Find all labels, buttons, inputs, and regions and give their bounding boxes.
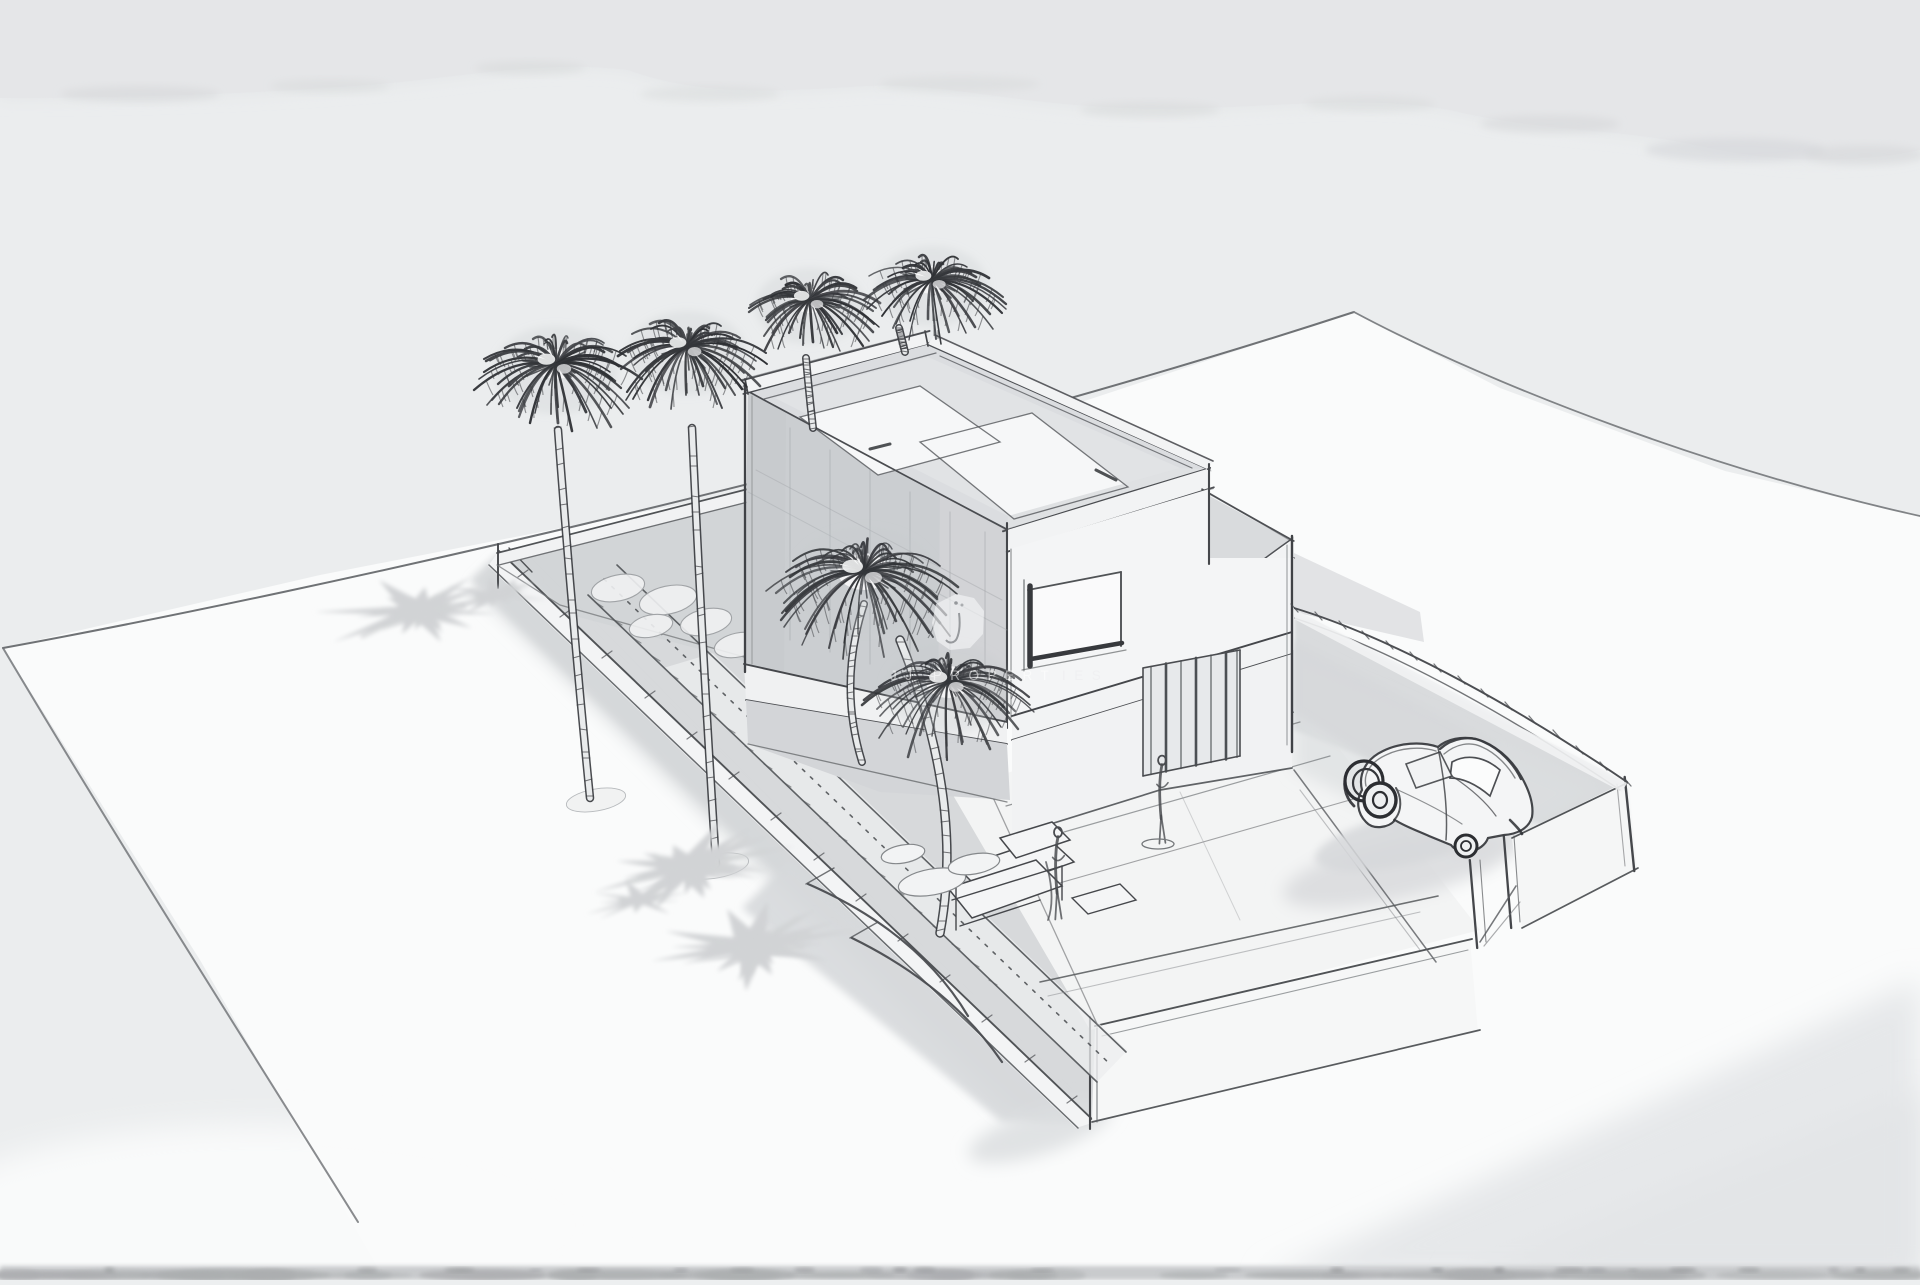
svg-text:IES: IES (1062, 668, 1109, 683)
svg-text:JJ PROPERT: JJ PROPERT (890, 668, 1057, 683)
